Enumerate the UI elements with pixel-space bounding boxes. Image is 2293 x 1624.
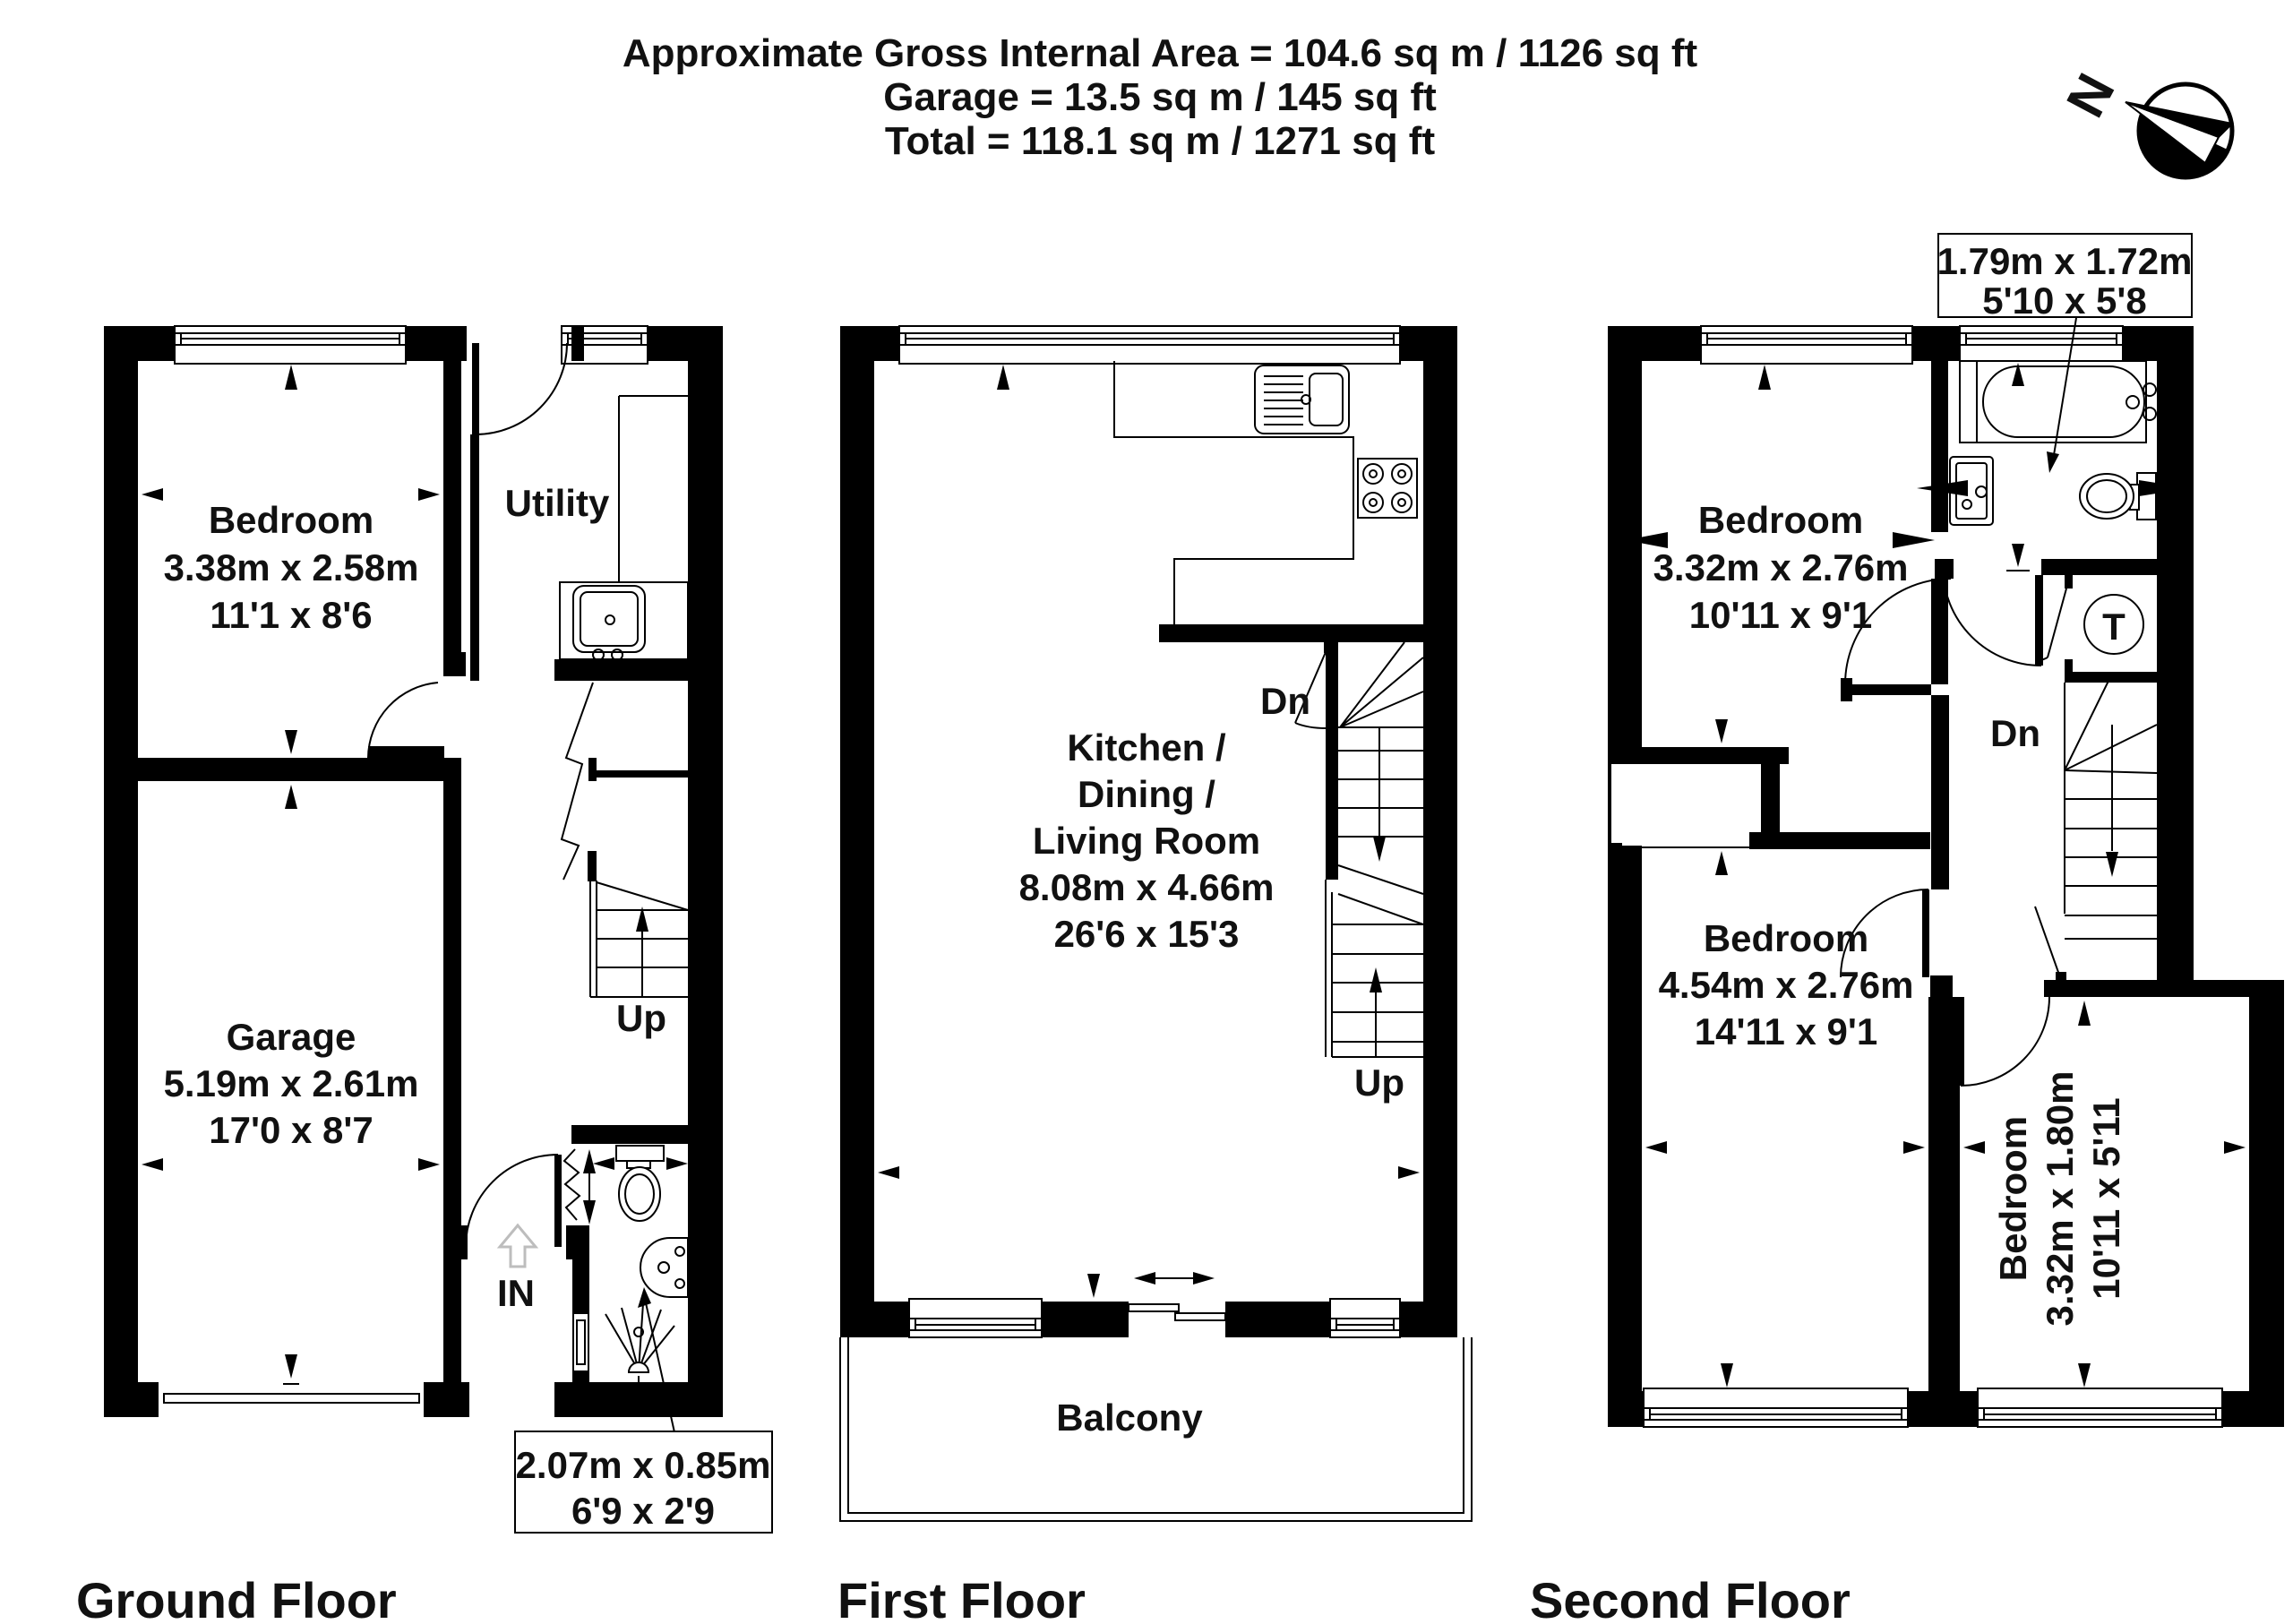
svg-text:Utility: Utility [505, 482, 610, 524]
svg-text:Ground Floor: Ground Floor [76, 1572, 397, 1624]
svg-text:Dn: Dn [1260, 680, 1310, 722]
svg-text:T: T [2102, 606, 2126, 648]
svg-text:14'11 x 9'1: 14'11 x 9'1 [1695, 1010, 1878, 1053]
svg-text:5.19m x 2.61m: 5.19m x 2.61m [164, 1062, 419, 1104]
svg-text:26'6 x 15'3: 26'6 x 15'3 [1054, 913, 1240, 955]
svg-text:Approximate Gross Internal Are: Approximate Gross Internal Area = 104.6 … [623, 31, 1698, 75]
svg-text:10'11 x 9'1: 10'11 x 9'1 [1689, 594, 1873, 636]
svg-text:Up: Up [1354, 1061, 1404, 1104]
svg-text:Bedroom: Bedroom [209, 499, 374, 541]
svg-text:Up: Up [616, 997, 666, 1039]
svg-text:3.32m x 1.80m: 3.32m x 1.80m [2039, 1071, 2081, 1327]
svg-text:Kitchen /: Kitchen / [1067, 726, 1226, 769]
svg-text:Garage: Garage [227, 1016, 356, 1058]
svg-text:Total = 118.1 sq m / 1271 sq f: Total = 118.1 sq m / 1271 sq ft [885, 119, 1436, 163]
svg-text:17'0 x 8'7: 17'0 x 8'7 [209, 1109, 373, 1151]
svg-text:Bedroom: Bedroom [1698, 499, 1863, 541]
svg-text:8.08m x 4.66m: 8.08m x 4.66m [1019, 866, 1275, 908]
svg-text:11'1 x 8'6: 11'1 x 8'6 [210, 594, 372, 636]
svg-text:6'9 x 2'9: 6'9 x 2'9 [571, 1490, 715, 1532]
svg-text:Dn: Dn [1990, 712, 2040, 754]
svg-text:3.32m x 2.76m: 3.32m x 2.76m [1653, 546, 1909, 589]
svg-text:Garage = 13.5 sq m / 145 sq ft: Garage = 13.5 sq m / 145 sq ft [883, 75, 1437, 119]
svg-text:1.79m x 1.72m: 1.79m x 1.72m [1937, 240, 2193, 282]
svg-text:3.38m x 2.58m: 3.38m x 2.58m [164, 546, 419, 589]
svg-text:10'11 x 5'11: 10'11 x 5'11 [2085, 1097, 2127, 1300]
svg-text:4.54m x 2.76m: 4.54m x 2.76m [1659, 964, 1914, 1006]
svg-text:Bedroom: Bedroom [1704, 917, 1868, 959]
svg-text:2.07m x 0.85m: 2.07m x 0.85m [516, 1444, 771, 1486]
svg-text:Balcony: Balcony [1056, 1396, 1203, 1439]
svg-text:5'10 x 5'8: 5'10 x 5'8 [1982, 279, 2146, 322]
svg-text:Dining /: Dining / [1078, 773, 1215, 815]
svg-text:Living Room: Living Room [1033, 820, 1260, 862]
svg-text:Bedroom: Bedroom [1992, 1116, 2034, 1281]
svg-text:IN: IN [497, 1272, 535, 1314]
svg-text:First Floor: First Floor [837, 1572, 1086, 1624]
svg-text:Second Floor: Second Floor [1530, 1572, 1851, 1624]
